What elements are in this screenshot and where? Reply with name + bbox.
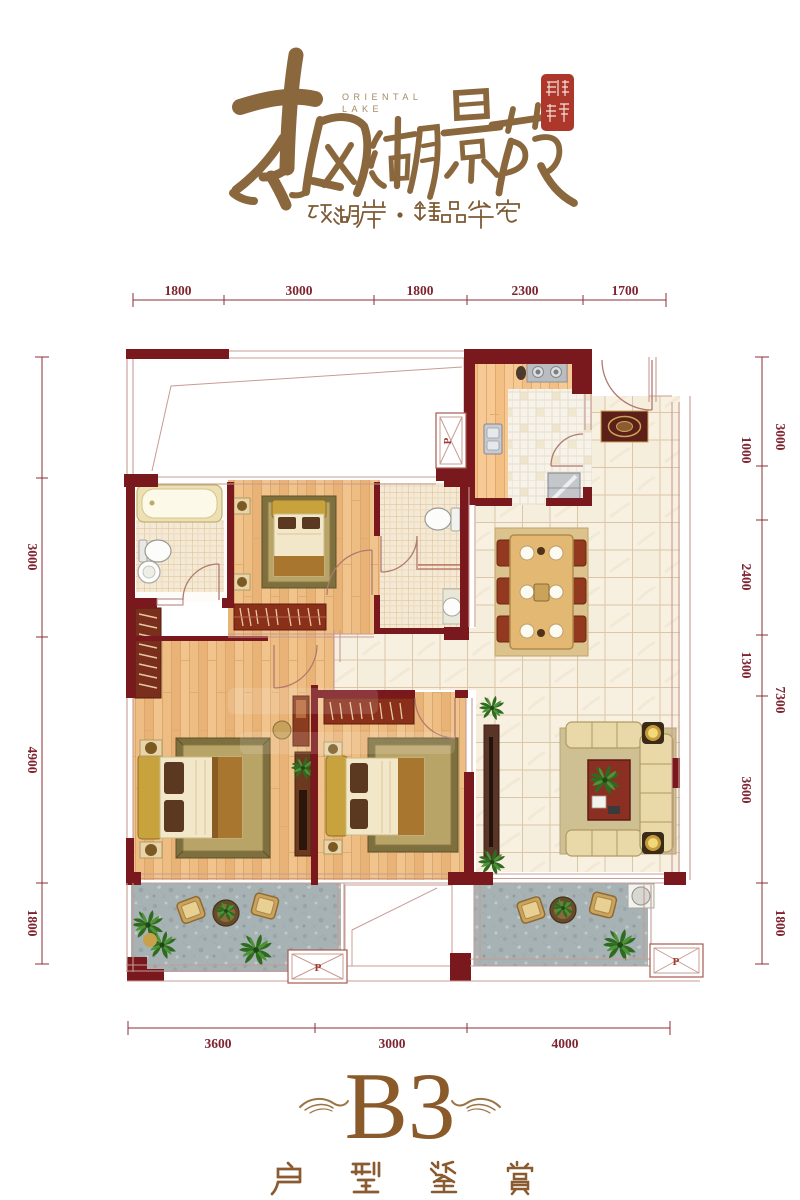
svg-text:1800: 1800 — [773, 910, 788, 937]
svg-text:1800: 1800 — [165, 283, 192, 298]
svg-text:LAKE: LAKE — [342, 104, 383, 114]
svg-text:3000: 3000 — [773, 424, 788, 451]
svg-text:1800: 1800 — [25, 910, 40, 937]
svg-text:1300: 1300 — [739, 652, 754, 679]
svg-text:P: P — [673, 956, 680, 968]
svg-text:B3: B3 — [345, 1053, 456, 1159]
svg-text:1800: 1800 — [407, 283, 434, 298]
svg-text:ORIENTAL: ORIENTAL — [342, 92, 422, 102]
svg-text:3600: 3600 — [739, 777, 754, 804]
svg-text:1700: 1700 — [612, 283, 639, 298]
svg-text:P: P — [442, 437, 454, 444]
svg-text:2400: 2400 — [739, 564, 754, 591]
svg-text:3000: 3000 — [379, 1036, 406, 1051]
svg-text:1000: 1000 — [739, 437, 754, 464]
svg-text:P: P — [315, 962, 322, 974]
svg-text:4900: 4900 — [25, 747, 40, 774]
svg-text:3600: 3600 — [205, 1036, 232, 1051]
svg-text:4000: 4000 — [552, 1036, 579, 1051]
svg-text:3000: 3000 — [286, 283, 313, 298]
svg-text:3000: 3000 — [25, 544, 40, 571]
svg-text:2300: 2300 — [512, 283, 539, 298]
svg-text:7300: 7300 — [773, 687, 788, 714]
